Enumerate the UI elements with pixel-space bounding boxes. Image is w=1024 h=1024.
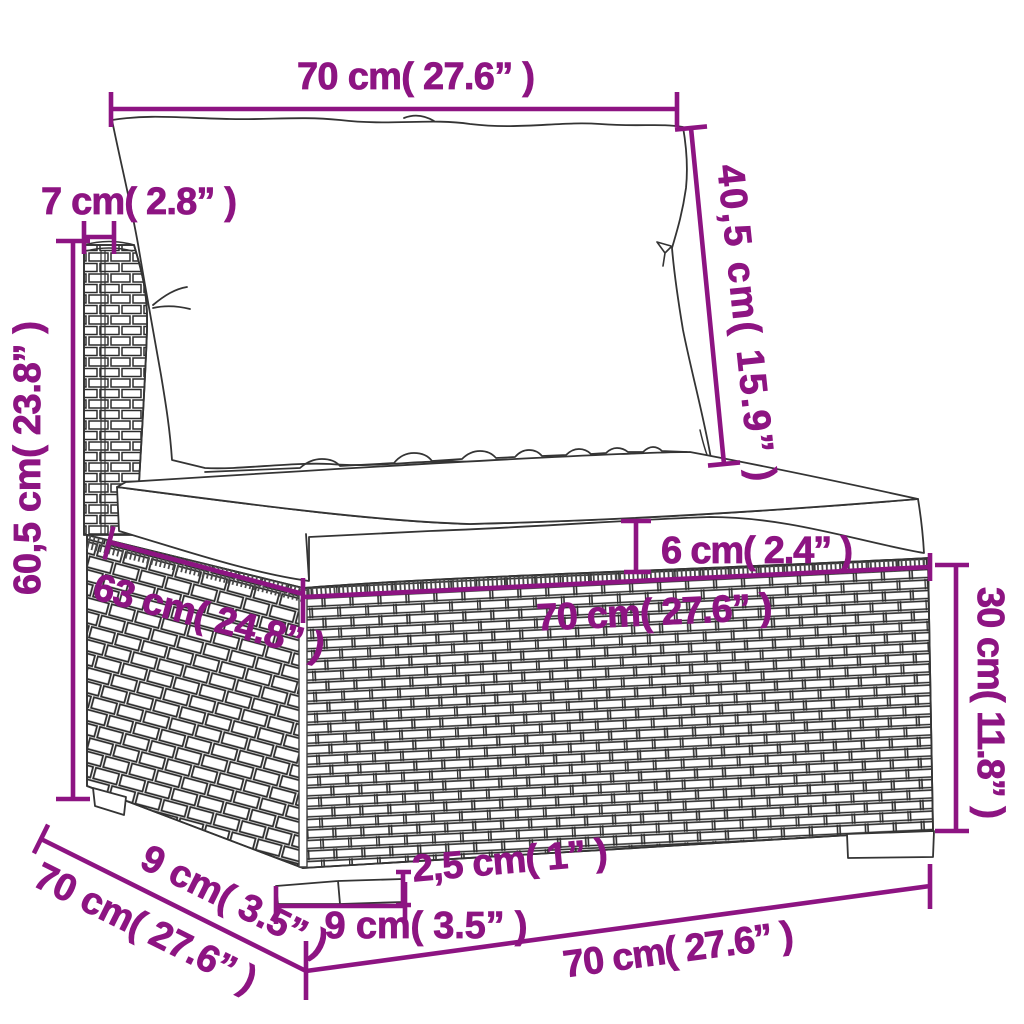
- svg-text:70 cm( 27.6” ): 70 cm( 27.6” ): [297, 56, 535, 98]
- svg-text:6 cm( 2.4” ): 6 cm( 2.4” ): [661, 530, 853, 572]
- svg-text:60,5 cm( 23.8” ): 60,5 cm( 23.8” ): [7, 321, 49, 595]
- svg-text:9 cm( 3.5” ): 9 cm( 3.5” ): [325, 905, 528, 947]
- svg-text:7 cm( 2.8” ): 7 cm( 2.8” ): [41, 181, 237, 223]
- svg-text:30 cm( 11.8” ): 30 cm( 11.8” ): [969, 587, 1011, 819]
